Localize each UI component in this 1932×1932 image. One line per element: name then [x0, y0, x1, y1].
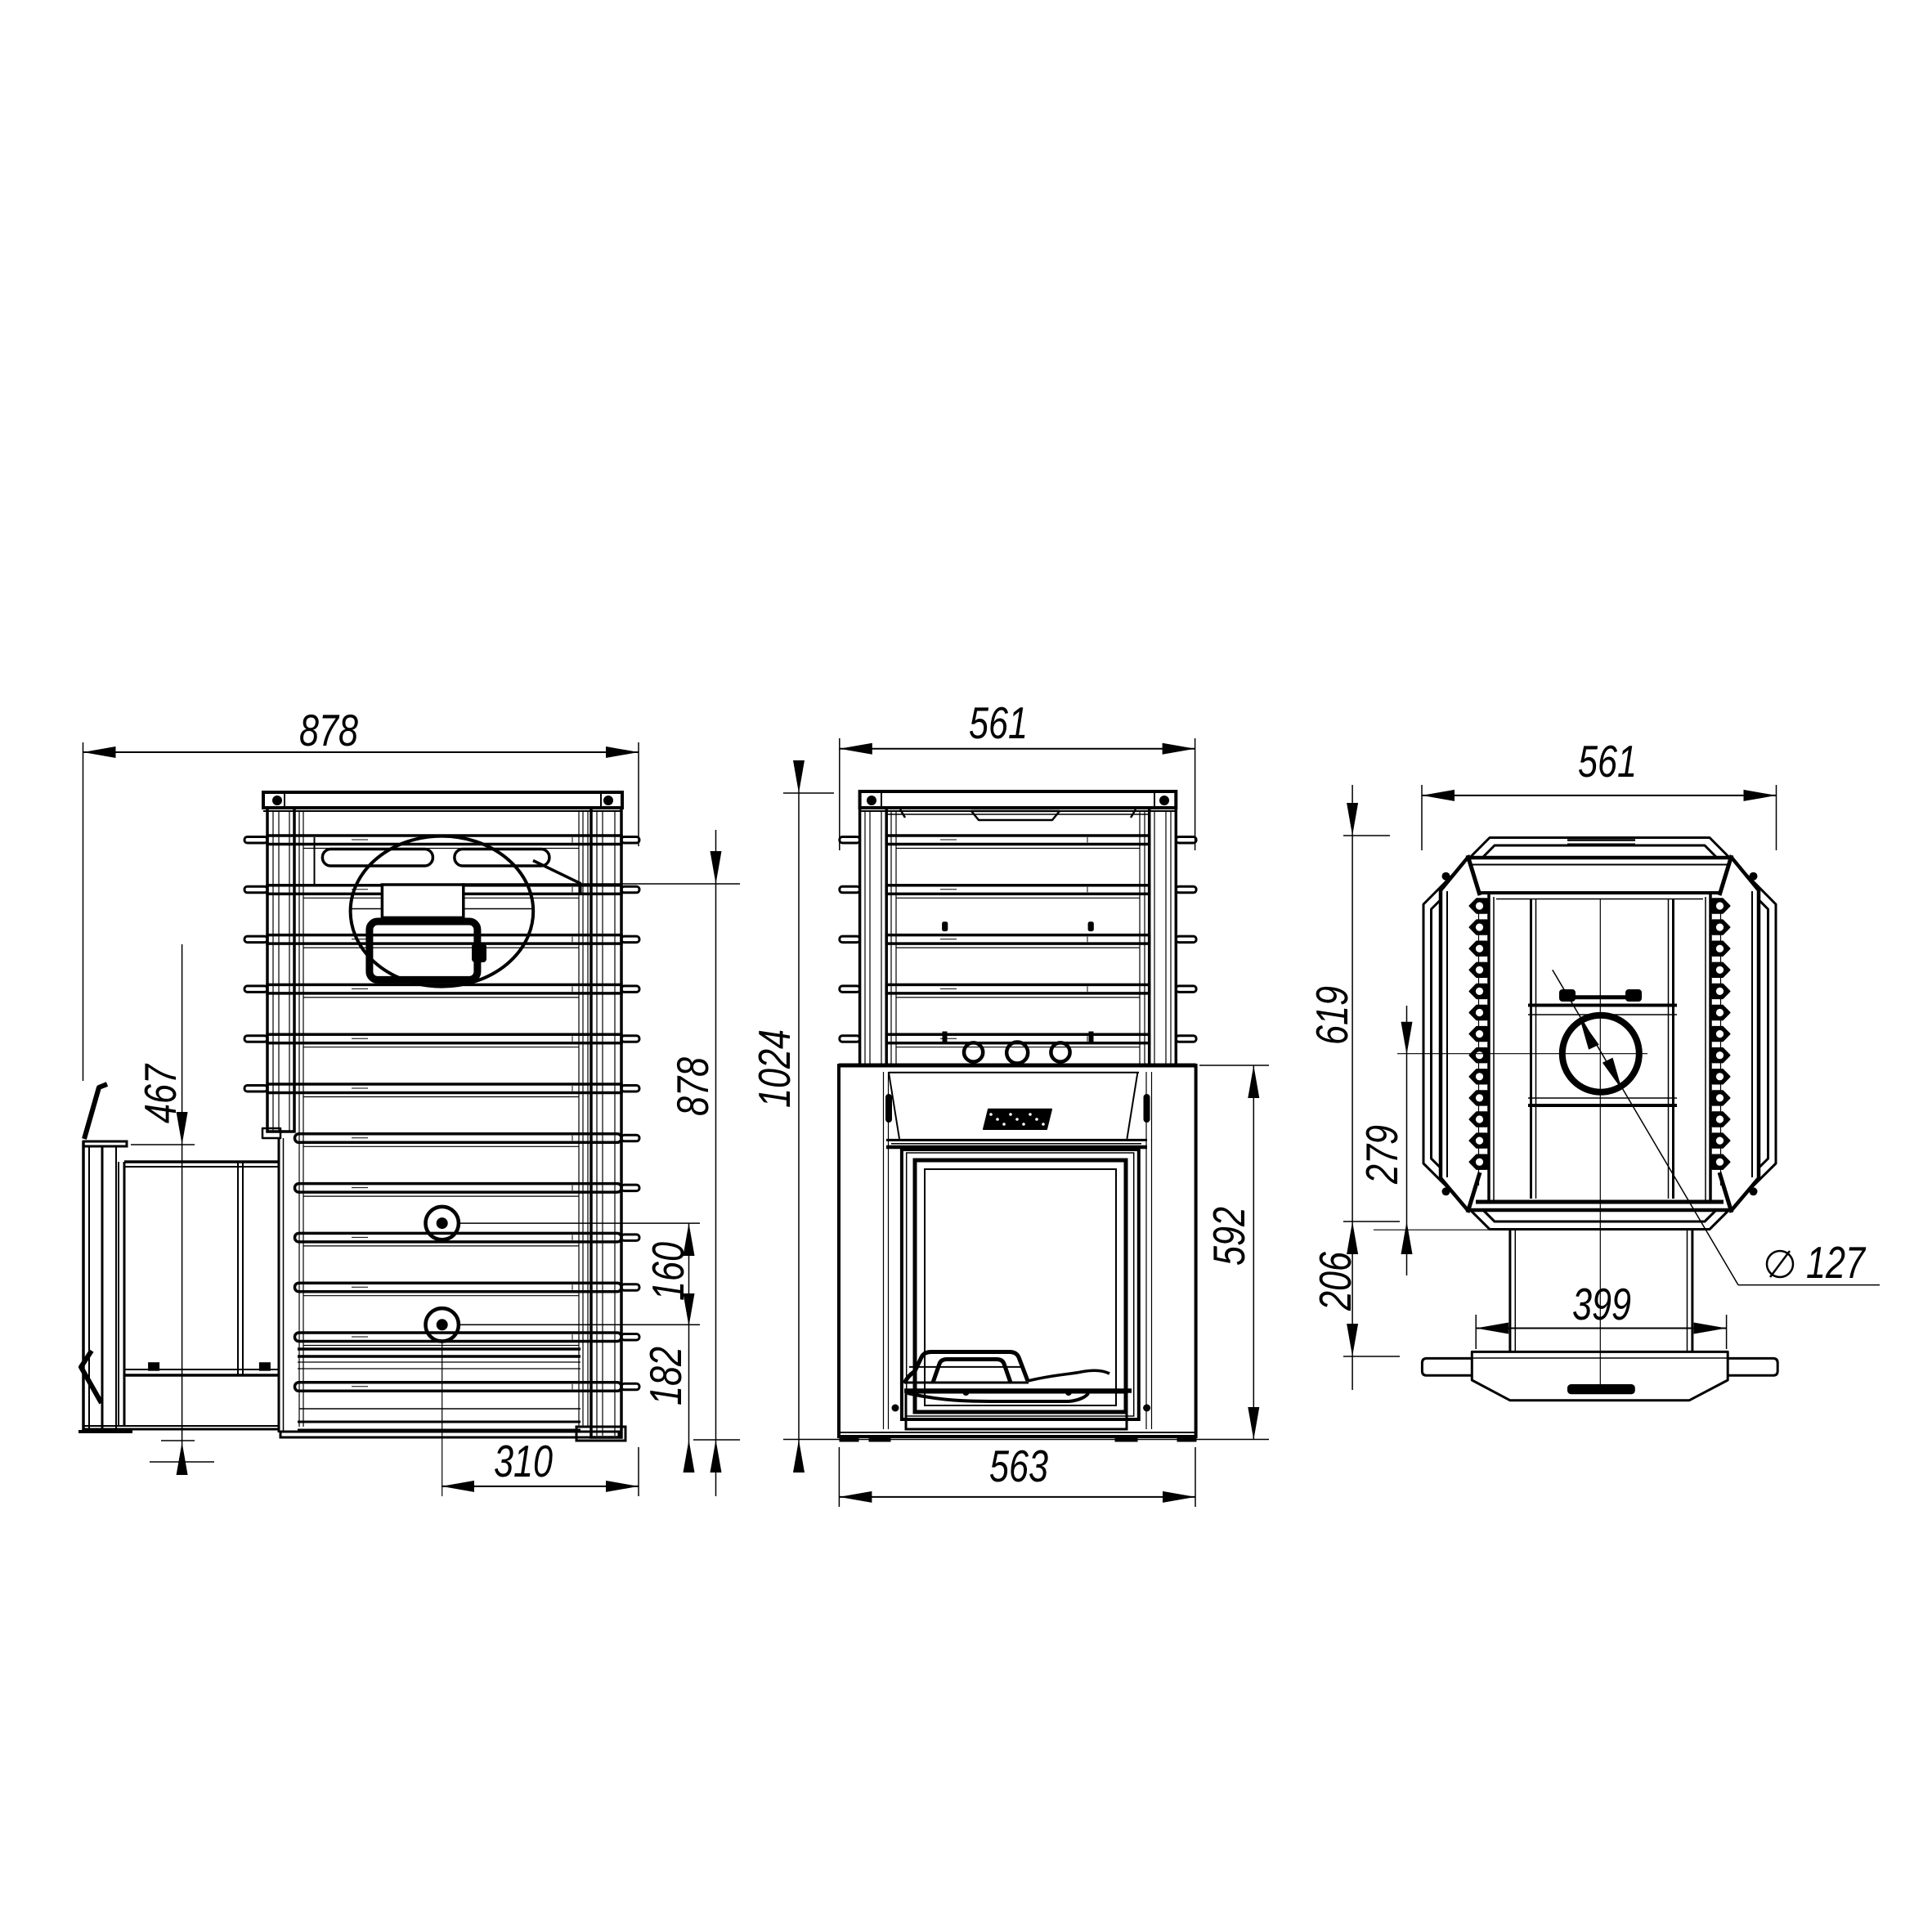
svg-text:619: 619 — [1307, 986, 1357, 1045]
svg-text:563: 563 — [989, 1441, 1048, 1491]
svg-text:160: 160 — [643, 1242, 693, 1301]
svg-text:127: 127 — [1806, 1237, 1867, 1288]
svg-text:467: 467 — [135, 1063, 186, 1123]
svg-text:206: 206 — [1310, 1252, 1360, 1311]
svg-text:561: 561 — [1578, 736, 1637, 787]
svg-text:279: 279 — [1356, 1125, 1407, 1185]
svg-text:399: 399 — [1572, 1279, 1631, 1329]
svg-text:1024: 1024 — [749, 1029, 800, 1108]
svg-text:182: 182 — [640, 1347, 691, 1405]
svg-text:878: 878 — [299, 705, 358, 755]
svg-text:592: 592 — [1204, 1207, 1254, 1266]
svg-text:310: 310 — [494, 1436, 553, 1486]
svg-text:878: 878 — [667, 1057, 718, 1116]
svg-text:561: 561 — [969, 697, 1028, 748]
